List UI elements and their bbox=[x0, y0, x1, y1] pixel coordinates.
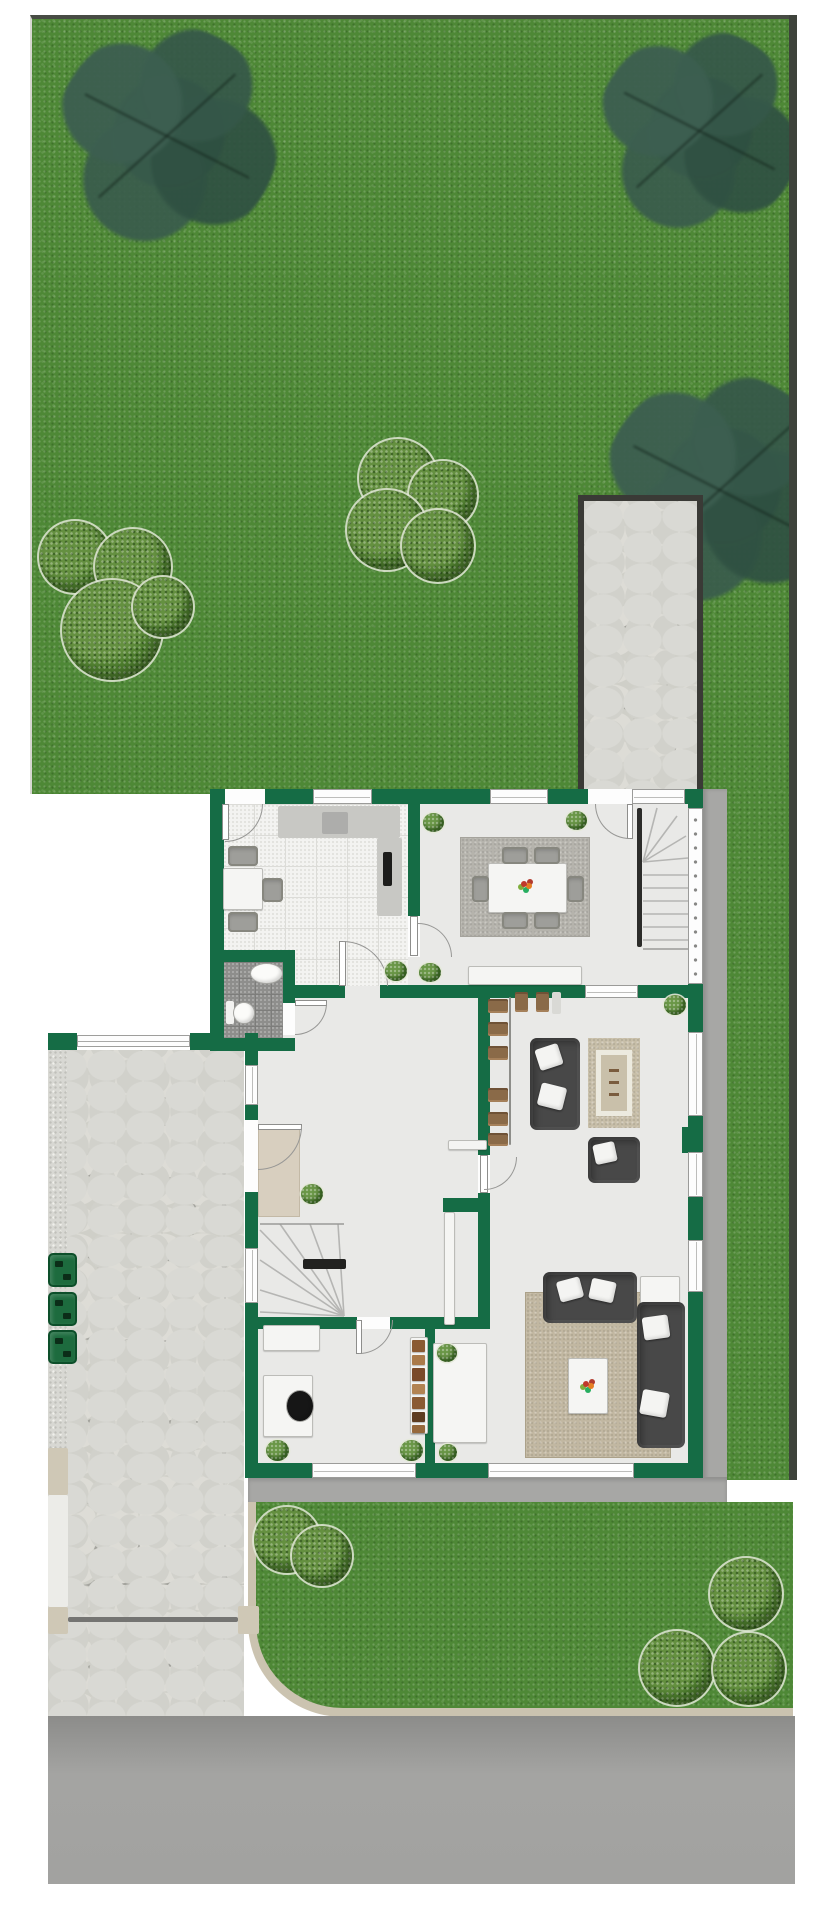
pillow bbox=[642, 1314, 671, 1340]
garden-fence bbox=[77, 1035, 190, 1047]
bush bbox=[133, 577, 193, 637]
kitchen-sink bbox=[322, 812, 348, 834]
waste-bin bbox=[48, 1330, 77, 1364]
door-swing-arc bbox=[595, 804, 630, 839]
shelf-books bbox=[412, 1368, 425, 1381]
window bbox=[585, 985, 638, 998]
chair bbox=[502, 847, 528, 864]
coat-hanger bbox=[488, 1133, 508, 1146]
closet-shelf bbox=[552, 992, 561, 1014]
driveway-gate-bar bbox=[68, 1617, 238, 1622]
bush bbox=[402, 510, 474, 582]
door-swing-arc bbox=[295, 1003, 327, 1035]
curb-post bbox=[48, 1607, 68, 1634]
coat-hanger bbox=[515, 992, 528, 1012]
bush bbox=[292, 1526, 352, 1586]
shelf-books bbox=[412, 1425, 425, 1433]
scene-layer bbox=[0, 0, 839, 1920]
window bbox=[245, 1248, 258, 1303]
potted-plant bbox=[266, 1440, 289, 1461]
potted-plant bbox=[419, 963, 441, 982]
kitchen-table bbox=[223, 868, 263, 910]
potted-plant bbox=[301, 1184, 323, 1204]
closet-rod bbox=[509, 997, 511, 1145]
dining-sideboard bbox=[468, 966, 582, 985]
coat-hanger bbox=[488, 1046, 508, 1060]
window bbox=[313, 789, 372, 804]
door-opening bbox=[225, 789, 265, 804]
coat-hanger bbox=[488, 1088, 508, 1102]
chair bbox=[262, 878, 283, 902]
chair bbox=[228, 912, 258, 932]
shelf-books bbox=[412, 1355, 425, 1365]
gate-post bbox=[238, 1606, 259, 1634]
coat-hanger bbox=[536, 992, 549, 1012]
wall bbox=[682, 1127, 689, 1153]
window bbox=[245, 1065, 258, 1105]
bush bbox=[710, 1558, 782, 1630]
window bbox=[488, 1463, 634, 1478]
potted-plant bbox=[437, 1344, 457, 1362]
wall bbox=[408, 804, 420, 916]
potted-plant bbox=[385, 961, 407, 981]
bush bbox=[640, 1631, 714, 1705]
waste-bin bbox=[48, 1292, 77, 1326]
chair bbox=[567, 876, 584, 902]
potted-plant bbox=[423, 813, 444, 832]
flower-centerpiece bbox=[583, 1381, 589, 1387]
window bbox=[688, 1032, 703, 1116]
wall bbox=[295, 985, 345, 998]
window bbox=[632, 789, 685, 804]
potted-plant bbox=[566, 811, 587, 830]
wall bbox=[390, 1317, 487, 1329]
coat-hanger bbox=[488, 1022, 508, 1036]
door-swing-arc bbox=[225, 804, 263, 842]
stair-railing-window bbox=[688, 808, 703, 984]
door-leaf bbox=[410, 916, 418, 956]
wall bbox=[210, 1038, 295, 1051]
window bbox=[490, 789, 548, 804]
hall-sideboard bbox=[448, 1140, 487, 1150]
door-swing-arc bbox=[343, 941, 388, 986]
door-swing-arc bbox=[258, 1126, 302, 1170]
bathroom-sink bbox=[250, 963, 283, 984]
door-swing-arc bbox=[359, 1320, 393, 1354]
window bbox=[688, 1152, 703, 1197]
curb-post bbox=[48, 1448, 68, 1495]
chair bbox=[228, 846, 258, 866]
coat-hanger bbox=[488, 1112, 508, 1126]
potted-plant bbox=[664, 995, 686, 1015]
site-plan-page bbox=[0, 0, 839, 1920]
window bbox=[688, 1240, 703, 1292]
wall bbox=[443, 1198, 490, 1212]
curb-strip bbox=[48, 1495, 68, 1607]
office-chair bbox=[286, 1390, 314, 1422]
door-opening bbox=[283, 1003, 295, 1035]
chair bbox=[534, 847, 560, 864]
chair bbox=[472, 876, 489, 902]
door-swing-arc bbox=[418, 923, 452, 957]
bush bbox=[713, 1633, 785, 1705]
stair-stringer bbox=[637, 808, 642, 947]
door-swing-arc bbox=[484, 1157, 517, 1190]
wall bbox=[478, 1193, 490, 1329]
potted-plant bbox=[400, 1440, 423, 1461]
chair bbox=[502, 912, 528, 929]
wall bbox=[48, 1033, 77, 1050]
shelf-books bbox=[412, 1384, 425, 1394]
door-opening bbox=[588, 789, 632, 804]
door-opening bbox=[245, 1120, 258, 1192]
window bbox=[312, 1463, 416, 1478]
dining-table bbox=[488, 863, 567, 913]
shelf-books bbox=[412, 1412, 425, 1422]
shelf-books bbox=[412, 1340, 425, 1352]
chair bbox=[534, 912, 560, 929]
wall bbox=[283, 950, 295, 1003]
pillow bbox=[639, 1389, 670, 1418]
storage-cabinet bbox=[444, 1212, 455, 1325]
potted-plant bbox=[439, 1444, 457, 1461]
coat-hanger bbox=[488, 999, 508, 1013]
toilet-bowl bbox=[233, 1002, 255, 1024]
basement-stair-handrail bbox=[303, 1259, 346, 1269]
printer-stand bbox=[263, 1325, 320, 1351]
shelf-books bbox=[412, 1397, 425, 1409]
waste-bin bbox=[48, 1253, 77, 1287]
kitchen-tall-unit bbox=[383, 852, 392, 886]
flower-centerpiece bbox=[521, 881, 527, 887]
